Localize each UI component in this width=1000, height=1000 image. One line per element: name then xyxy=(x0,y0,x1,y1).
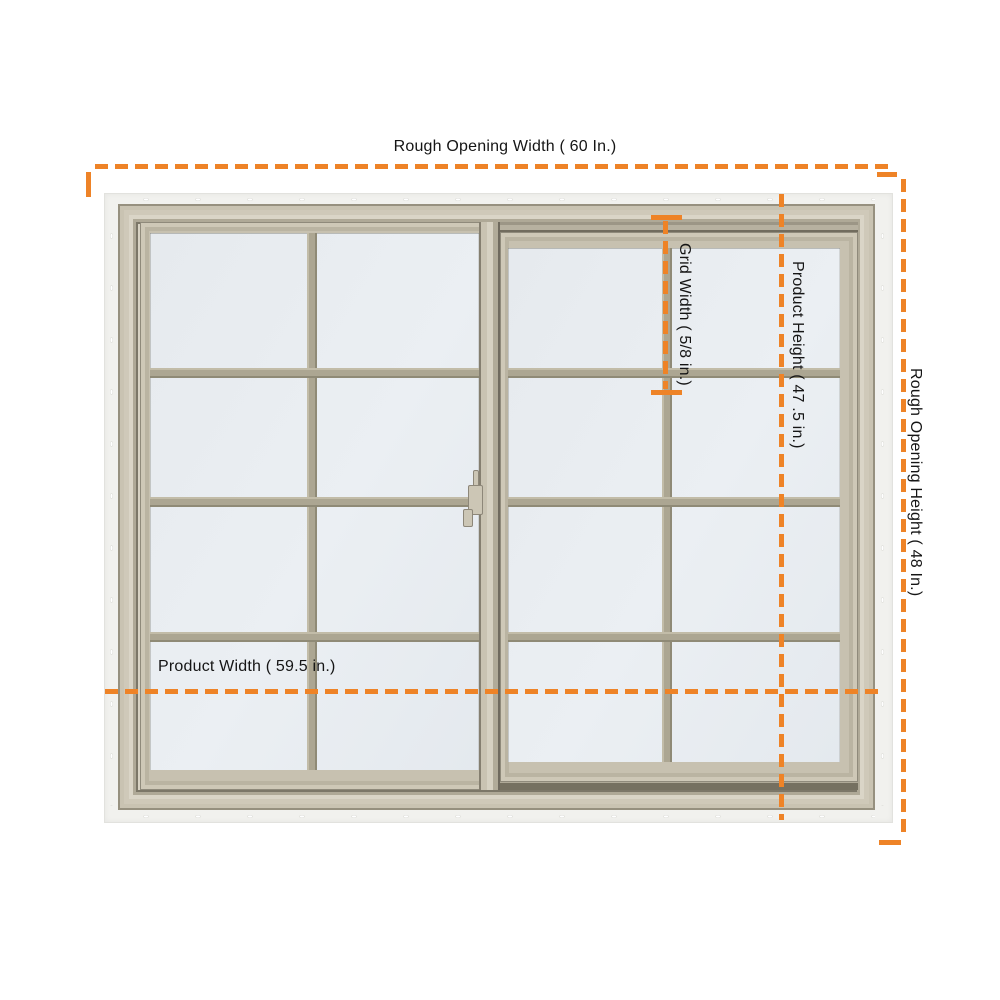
sash-latch[interactable] xyxy=(463,470,487,528)
grid-width-top-tick xyxy=(651,215,682,220)
grid-bar-horizontal xyxy=(150,632,479,642)
grid-width-bottom-tick xyxy=(651,390,682,395)
grid-bar-horizontal xyxy=(508,497,840,507)
nail-holes-bottom xyxy=(120,813,875,820)
grid-bar-horizontal xyxy=(150,497,479,507)
rough-opening-height-label: Rough Opening Height ( 48 In.) xyxy=(906,368,924,596)
product-height-line xyxy=(779,194,784,820)
grid-bar-horizontal xyxy=(150,368,479,378)
latch-hook xyxy=(463,509,473,527)
left-sash xyxy=(140,222,500,790)
rough-opening-height-bottom-tick xyxy=(879,840,901,845)
nail-holes-top xyxy=(120,196,875,203)
rough-opening-height-top-tick xyxy=(877,172,897,177)
nail-holes-right xyxy=(879,210,886,806)
window-dimension-diagram: Rough Opening Width ( 60 In.) Rough Open… xyxy=(0,0,1000,1000)
grid-width-label: Grid Width ( 5/8 in.) xyxy=(675,243,693,386)
rough-opening-width-end-tick xyxy=(86,172,91,197)
product-width-line xyxy=(105,689,881,694)
rough-opening-width-line xyxy=(95,164,893,169)
grid-width-line xyxy=(663,221,668,389)
rough-opening-width-label: Rough Opening Width ( 60 In.) xyxy=(300,138,710,156)
grid-bar-horizontal xyxy=(508,632,840,642)
product-width-label: Product Width ( 59.5 in.) xyxy=(158,658,336,676)
nail-holes-left xyxy=(108,210,115,806)
product-height-label: Product Height ( 47 .5 in.) xyxy=(788,261,806,449)
